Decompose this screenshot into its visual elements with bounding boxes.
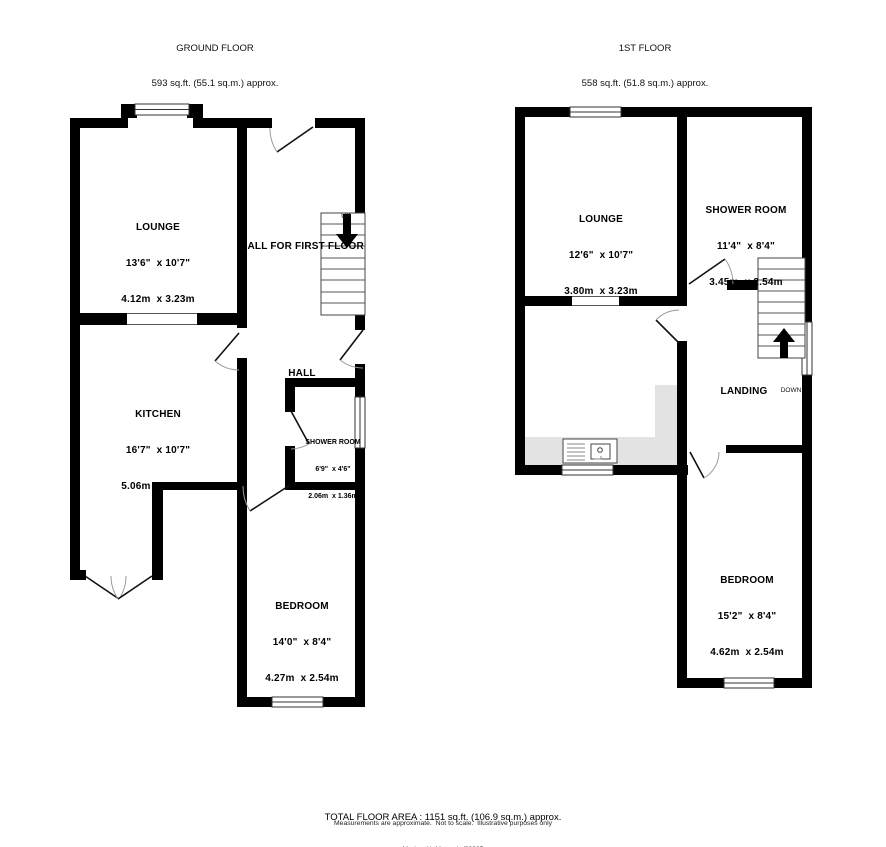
gf-kitchen-label: KITCHEN 16'7" x 10'7" 5.06m x 3.23m	[78, 385, 238, 517]
room-dims-metric: 3.45m x 2.54m	[666, 277, 826, 289]
gf-up-label: UP	[330, 197, 362, 237]
wall-segment	[70, 118, 128, 128]
room-dims-imperial: 12'6" x 10'7"	[521, 250, 681, 262]
side-door	[340, 330, 363, 368]
ground-floor-title-name: GROUND FLOOR	[115, 43, 315, 55]
room-dims-imperial: 6'9" x 4'6"	[283, 465, 383, 474]
kitchen-window	[562, 465, 613, 475]
disclaimer: Measurements are approximate. Not to sca…	[268, 803, 618, 847]
room-name: SHOWER ROOM	[283, 438, 383, 447]
room-dims-imperial: 15'2" x 8'4"	[667, 611, 827, 623]
room-name: KITCHEN	[78, 409, 238, 421]
patio-double-doors	[85, 576, 152, 599]
first-floor-title-area: 558 sq.ft. (51.8 sq.m.) approx.	[545, 78, 745, 90]
room-dims-metric: 4.62m x 2.54m	[667, 647, 827, 659]
first-floor-title-name: 1ST FLOOR	[545, 43, 745, 55]
room-name: HALL	[262, 368, 342, 380]
ff-shower-label: SHOWER ROOM 11'4" x 8'4" 3.45m x 2.54m	[666, 181, 826, 313]
disclaimer-text: Measurements are approximate. Not to sca…	[268, 820, 618, 829]
room-name: HALL FOR FIRST FLOOR	[222, 241, 382, 253]
room-name: LOUNGE	[521, 214, 681, 226]
room-name: BEDROOM	[222, 601, 382, 613]
room-name: LOUNGE	[78, 222, 238, 234]
room-dims-imperial: 11'4" x 8'4"	[666, 241, 826, 253]
gf-shower-label: SHOWER ROOM 6'9" x 4'6" 2.06m x 1.36m	[283, 420, 383, 519]
wall-segment	[515, 465, 564, 475]
room-dims-metric: 5.06m x 3.23m	[78, 481, 238, 493]
gf-lounge-label: LOUNGE 13'6" x 10'7" 4.12m x 3.23m	[78, 198, 238, 330]
ground-floor-title-area: 593 sq.ft. (55.1 sq.m.) approx.	[115, 78, 315, 90]
room-dims-metric: 2.06m x 1.36m	[283, 492, 383, 501]
room-dims-imperial: 16'7" x 10'7"	[78, 445, 238, 457]
kitchen-sink	[563, 439, 617, 463]
kitchen-door	[215, 333, 239, 370]
wall-segment	[726, 445, 812, 453]
floorplan-canvas: GROUND FLOOR 593 sq.ft. (55.1 sq.m.) app…	[0, 0, 886, 847]
first-floor-title: 1ST FLOOR 558 sq.ft. (51.8 sq.m.) approx…	[545, 20, 745, 112]
gf-bedroom-label: BEDROOM 14'0" x 8'4" 4.27m x 2.54m	[222, 577, 382, 709]
room-name: SHOWER ROOM	[666, 205, 826, 217]
ground-floor-title: GROUND FLOOR 593 sq.ft. (55.1 sq.m.) app…	[115, 20, 315, 112]
wall-segment	[70, 570, 86, 580]
gf-hall-label: HALL	[262, 344, 342, 404]
stair-direction-label: DOWN	[774, 387, 808, 395]
ff-bedroom-label: BEDROOM 15'2" x 8'4" 4.62m x 2.54m	[667, 551, 827, 683]
room-dims-metric: 3.80m x 3.23m	[521, 286, 681, 298]
room-dims-metric: 4.27m x 2.54m	[222, 673, 382, 685]
ff-down-label: DOWN	[774, 371, 808, 411]
entrance-door	[270, 127, 313, 152]
room-name: BEDROOM	[667, 575, 827, 587]
room-dims-metric: 4.12m x 3.23m	[78, 294, 238, 306]
wall-segment	[611, 465, 688, 475]
room-dims-imperial: 14'0" x 8'4"	[222, 637, 382, 649]
stair-direction-label: UP	[330, 213, 362, 221]
room-dims-imperial: 13'6" x 10'7"	[78, 258, 238, 270]
ff-lounge-label: LOUNGE 12'6" x 10'7" 3.80m x 3.23m	[521, 190, 681, 322]
bedroom-door	[690, 452, 719, 478]
wall-segment	[193, 118, 272, 128]
